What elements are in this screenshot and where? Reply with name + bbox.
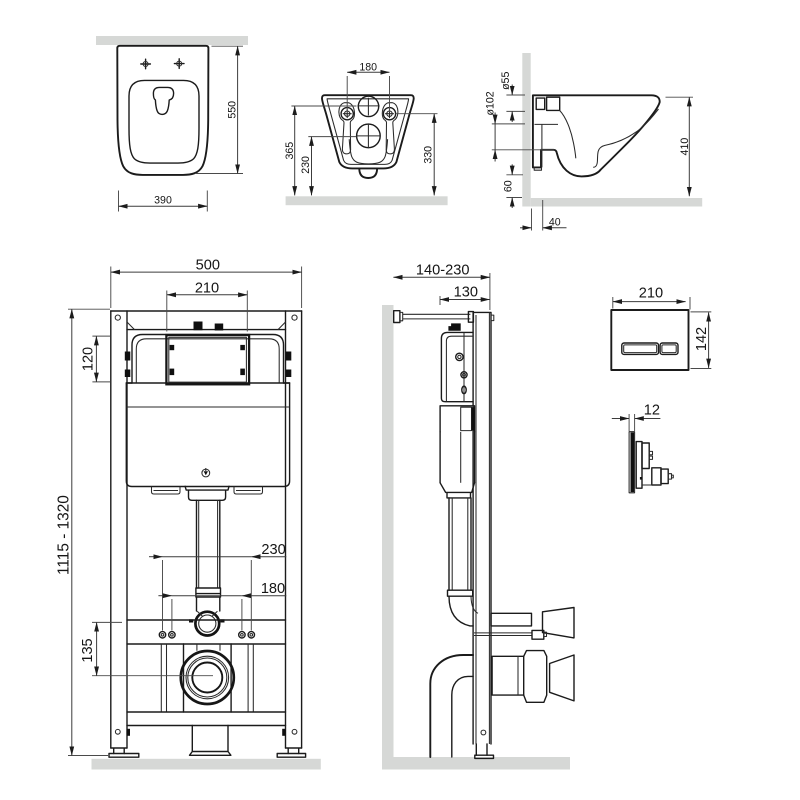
svg-text:ø55: ø55 (500, 72, 512, 90)
svg-text:210: 210 (639, 286, 663, 302)
svg-text:12: 12 (644, 403, 660, 419)
svg-text:140-230: 140-230 (416, 263, 470, 279)
svg-text:130: 130 (454, 285, 478, 301)
svg-text:1115 - 1320: 1115 - 1320 (55, 495, 72, 575)
svg-text:230: 230 (261, 542, 285, 558)
svg-text:60: 60 (502, 180, 514, 192)
svg-text:550: 550 (226, 101, 238, 119)
svg-text:390: 390 (154, 194, 172, 206)
svg-text:180: 180 (261, 581, 285, 597)
svg-text:230: 230 (300, 156, 312, 174)
svg-text:ø102: ø102 (484, 91, 496, 115)
svg-text:180: 180 (359, 61, 377, 73)
svg-text:365: 365 (284, 142, 296, 160)
svg-text:330: 330 (423, 146, 435, 164)
svg-text:135: 135 (80, 638, 96, 662)
svg-text:500: 500 (196, 258, 220, 274)
svg-text:40: 40 (549, 216, 561, 228)
svg-text:410: 410 (679, 138, 691, 156)
svg-text:210: 210 (195, 280, 219, 296)
svg-text:142: 142 (694, 327, 710, 351)
svg-text:120: 120 (81, 347, 97, 371)
